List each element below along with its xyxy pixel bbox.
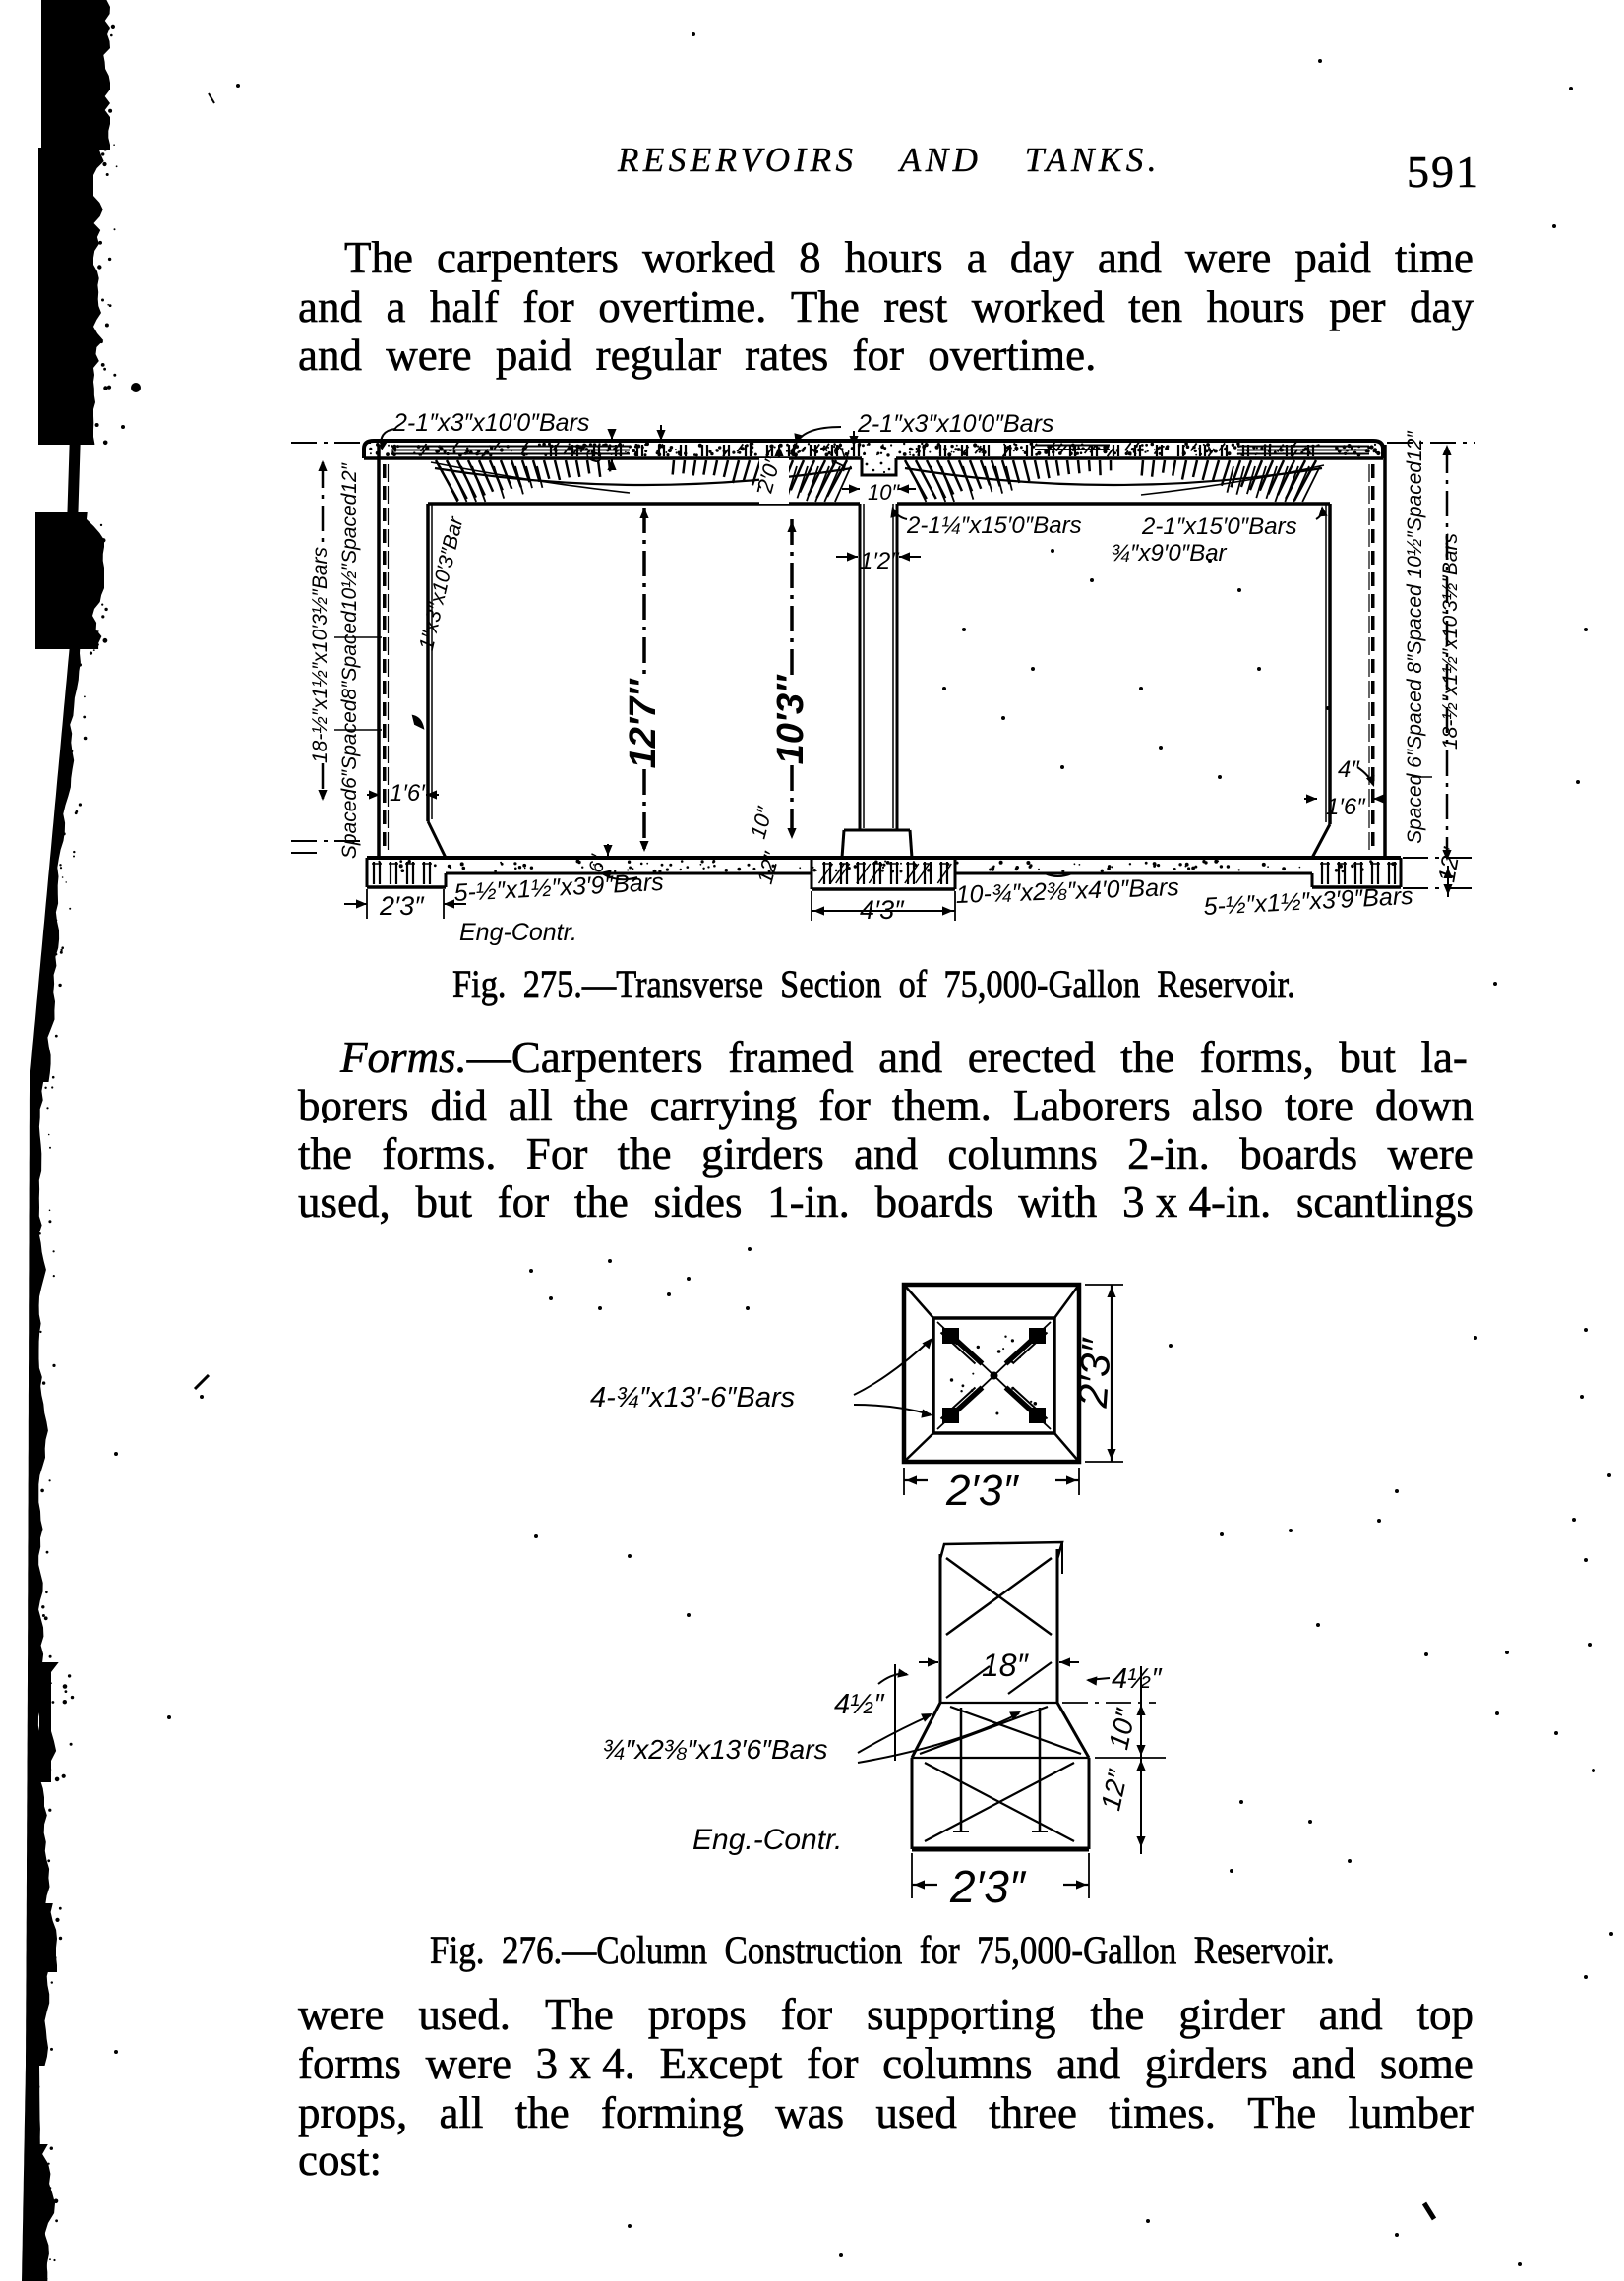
svg-text:18-½″x1½″x10′3½″Bars: 18-½″x1½″x10′3½″Bars [309, 546, 331, 763]
svg-text:1″x3″x10′3″Bar: 1″x3″x10′3″Bar [415, 514, 468, 653]
svg-text:2-1″x15′0″Bars: 2-1″x15′0″Bars [1141, 513, 1297, 540]
svg-text:1′2″: 1′2″ [860, 548, 900, 574]
svg-text:4½″: 4½″ [1112, 1663, 1163, 1695]
svg-text:4′3″: 4′3″ [860, 895, 905, 925]
svg-text:10″: 10″ [1103, 1706, 1141, 1753]
svg-text:2-1″x3″x10′0″Bars: 2-1″x3″x10′0″Bars [857, 410, 1053, 438]
svg-text:4-¾″x13′-6″Bars: 4-¾″x13′-6″Bars [590, 1382, 795, 1413]
svg-text:Spaced 6″Spaced 8″Spaced 10½″S: Spaced 6″Spaced 8″Spaced 10½″Spaced12″ [1404, 430, 1426, 844]
svg-text:12′7″: 12′7″ [623, 678, 664, 769]
svg-text:5-½″x1½″x3′9″Bars: 5-½″x1½″x3′9″Bars [1203, 882, 1413, 921]
svg-text:10″: 10″ [746, 803, 778, 841]
svg-text:1′6″: 1′6″ [390, 780, 430, 807]
svg-text:¾″x9′0″Bar: ¾″x9′0″Bar [1111, 540, 1228, 567]
svg-text:12″: 12″ [752, 848, 785, 886]
svg-text:2-1″x3″x10′0″Bars: 2-1″x3″x10′0″Bars [392, 409, 589, 437]
svg-text:2′3″: 2′3″ [1069, 1336, 1120, 1411]
svg-text:Eng.-Contr.: Eng.-Contr. [692, 1824, 842, 1856]
svg-text:10-¾″x2⅜″x4′0″Bars: 10-¾″x2⅜″x4′0″Bars [955, 873, 1179, 909]
svg-text:18″: 18″ [982, 1648, 1030, 1683]
svg-text:2-1¼″x15′0″Bars: 2-1¼″x15′0″Bars [906, 512, 1082, 539]
svg-text:Spaced6″Spaced8″Spaced10½″Spac: Spaced6″Spaced8″Spaced10½″Spaced12″ [338, 461, 361, 859]
svg-text:12″: 12″ [1433, 844, 1466, 884]
svg-text:Eng-Contr.: Eng-Contr. [459, 919, 577, 946]
svg-text:4″: 4″ [1338, 756, 1360, 783]
svg-text:10′3″: 10′3″ [770, 674, 812, 765]
svg-text:4½″: 4½″ [834, 1689, 885, 1720]
svg-text:2′3″: 2′3″ [379, 891, 425, 921]
svg-text:1′6″: 1′6″ [1326, 794, 1366, 820]
svg-text:2′3″: 2′3″ [949, 1861, 1027, 1912]
svg-text:12″: 12″ [1095, 1767, 1133, 1814]
svg-text:2′3″: 2′3″ [945, 1467, 1019, 1515]
svg-text:10″: 10″ [868, 480, 900, 505]
svg-text:18-½″x1½″x10′3½″Bars: 18-½″x1½″x10′3½″Bars [1439, 532, 1462, 750]
svg-text:¾″x2⅜″x13′6″Bars: ¾″x2⅜″x13′6″Bars [602, 1734, 828, 1765]
